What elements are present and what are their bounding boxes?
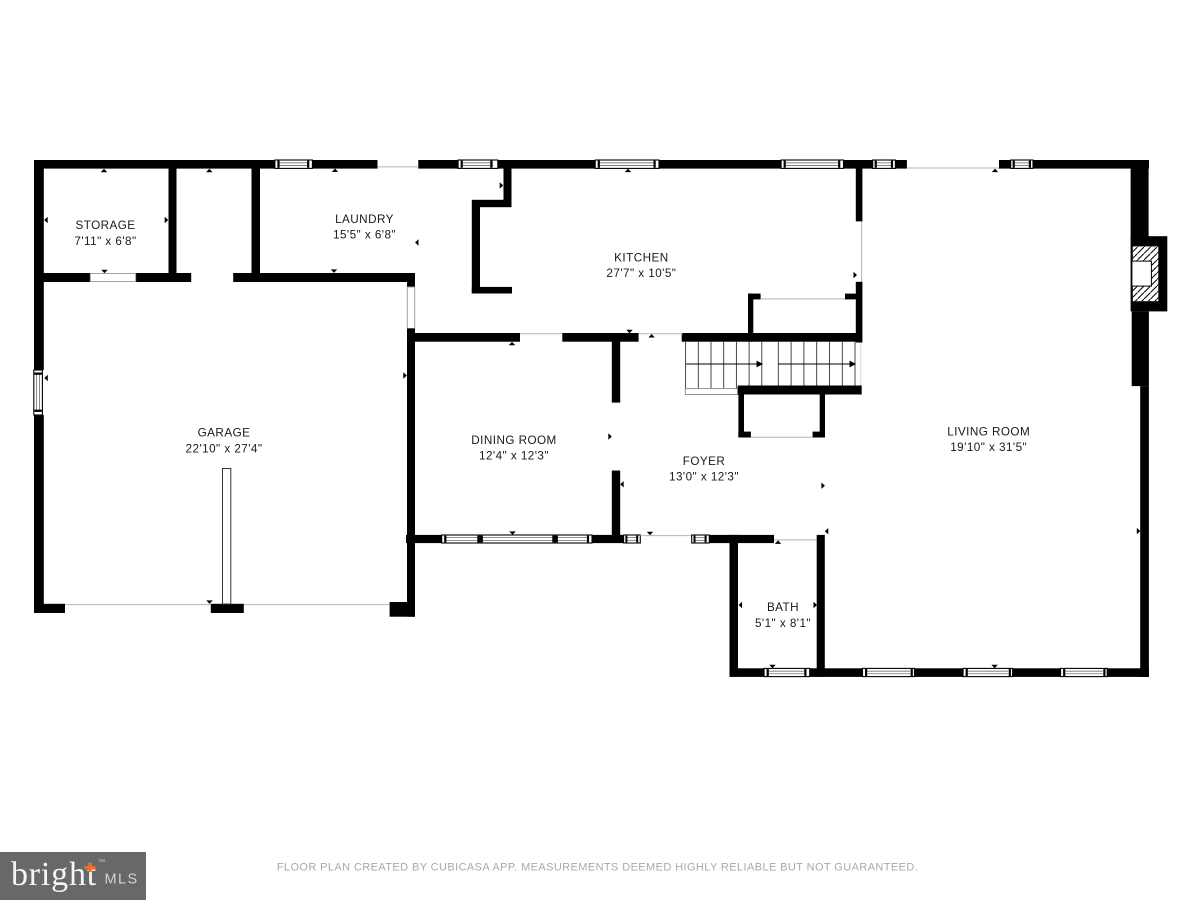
- svg-text:LAUNDRY: LAUNDRY: [335, 213, 394, 226]
- svg-text:KITCHEN: KITCHEN: [614, 252, 668, 265]
- svg-text:MLS: MLS: [105, 872, 139, 888]
- svg-text:STORAGE: STORAGE: [75, 219, 135, 232]
- svg-text:FOYER: FOYER: [683, 455, 726, 468]
- svg-text:BATH: BATH: [767, 601, 799, 614]
- svg-text:bright: bright: [11, 856, 97, 893]
- svg-text:27'7" x 10'5": 27'7" x 10'5": [606, 267, 676, 280]
- svg-text:12'4" x 12'3": 12'4" x 12'3": [479, 450, 549, 463]
- svg-text:7'11" x 6'8": 7'11" x 6'8": [74, 235, 136, 248]
- svg-text:15'5" x 6'8": 15'5" x 6'8": [333, 229, 396, 242]
- svg-text:GARAGE: GARAGE: [198, 427, 251, 440]
- svg-text:™: ™: [98, 859, 105, 866]
- svg-text:13'0" x 12'3": 13'0" x 12'3": [669, 471, 739, 484]
- svg-text:FLOOR PLAN CREATED BY CUBICASA: FLOOR PLAN CREATED BY CUBICASA APP. MEAS…: [277, 862, 918, 874]
- svg-text:LIVING ROOM: LIVING ROOM: [947, 426, 1030, 439]
- svg-text:22'10" x 27'4": 22'10" x 27'4": [186, 442, 263, 455]
- svg-text:19'10" x 31'5": 19'10" x 31'5": [950, 441, 1027, 454]
- svg-text:5'1" x 8'1": 5'1" x 8'1": [755, 617, 811, 630]
- svg-text:DINING ROOM: DINING ROOM: [471, 434, 556, 447]
